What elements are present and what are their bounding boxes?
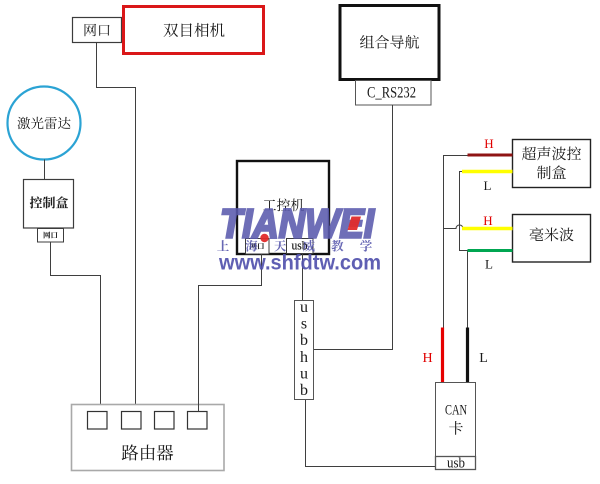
svg-text:b: b <box>300 332 308 349</box>
svg-text:www.shfdtw.com: www.shfdtw.com <box>218 250 381 274</box>
svg-text:s: s <box>301 315 307 332</box>
svg-text:L: L <box>485 257 493 272</box>
svg-text:L: L <box>479 351 488 366</box>
svg-text:h: h <box>300 349 308 366</box>
svg-text:usb: usb <box>447 456 465 472</box>
svg-text:usb: usb <box>292 237 308 252</box>
svg-text:H: H <box>422 351 432 366</box>
svg-text:u: u <box>300 365 308 382</box>
svg-text:u: u <box>300 299 308 316</box>
svg-text:C_RS232: C_RS232 <box>367 84 416 101</box>
svg-text:H: H <box>483 213 492 228</box>
svg-text:H: H <box>484 136 493 151</box>
svg-text:b: b <box>300 382 308 399</box>
svg-text:L: L <box>484 178 492 193</box>
svg-text:CAN: CAN <box>445 403 467 419</box>
